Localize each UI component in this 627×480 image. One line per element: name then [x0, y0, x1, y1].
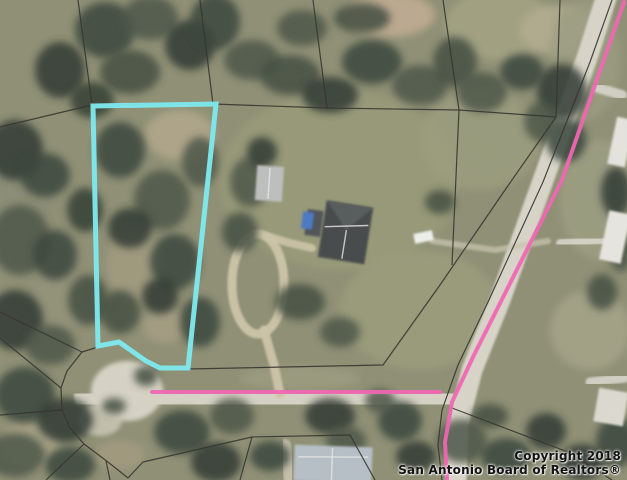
aerial-lot-map: Copyright 2018 San Antonio Board of Real…	[0, 0, 627, 480]
copyright-org-line: San Antonio Board of Realtors®	[398, 464, 621, 478]
photo-grain-overlay	[0, 0, 627, 480]
copyright-credit: Copyright 2018 San Antonio Board of Real…	[398, 450, 621, 477]
aerial-map-canvas	[0, 0, 627, 480]
copyright-year-line: Copyright 2018	[398, 450, 621, 464]
